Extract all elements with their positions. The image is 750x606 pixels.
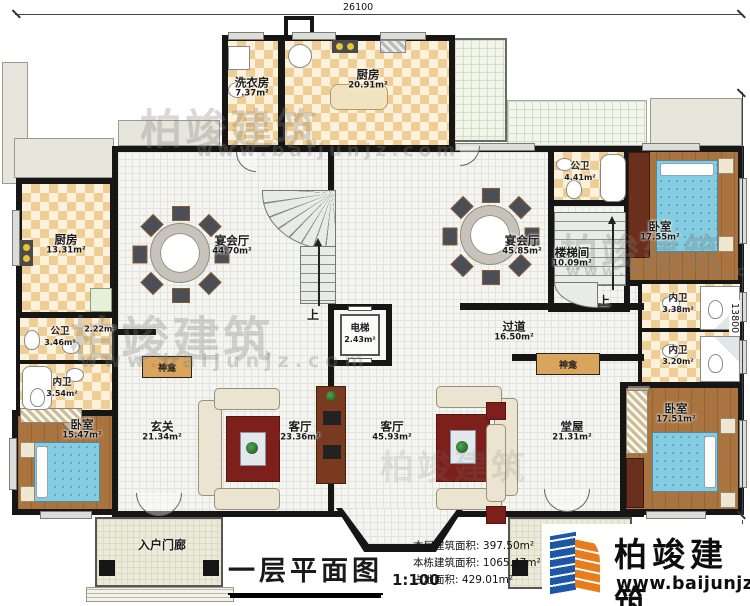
toilet-icon [566, 180, 582, 199]
room-label-public-bath-right: 公卫 4.41m² [564, 162, 596, 182]
page-title: 一层平面图 [228, 549, 383, 595]
range-hood-icon [380, 40, 406, 53]
toilet-icon [708, 300, 723, 319]
room-label-private-bath-right-upper: 内卫 3.38m² [662, 294, 694, 314]
elevator-door [348, 358, 372, 363]
floor-plan: 神龛 神龛 [0, 0, 750, 606]
company-logo: 柏竣建筑 www.baijunjz.com [542, 524, 750, 606]
shrine: 神龛 [142, 356, 192, 378]
area-label-closet-left: 2.22m² [84, 324, 116, 333]
room-label-stair-hall: 楼梯间 10.09m² [552, 247, 591, 270]
stairs-up-label: 上 [598, 295, 610, 309]
room-label-private-bath-left: 内卫 3.54m² [46, 378, 78, 398]
room-label-public-bath-left: 公卫 3.46m² [44, 327, 76, 347]
hall-sofa [486, 424, 506, 502]
logo-building-icon [575, 537, 600, 592]
porch-left-steps [86, 587, 234, 602]
company-name: 柏竣建筑 [614, 528, 750, 606]
room-label-banquet-right: 宴会厅 45.85m² [502, 235, 541, 258]
company-website: www.baijunjz.com [616, 574, 750, 594]
room-label-kitchen-left: 厨房 13.31m² [46, 234, 85, 257]
room-label-banquet-left: 宴会厅 44.70m² [212, 235, 251, 258]
tv-cabinet [316, 386, 346, 484]
stove-icon [332, 40, 358, 53]
room-label-bedroom-bottom-right: 卧室 17.51m² [656, 403, 695, 426]
room-label-bedroom-top-right: 卧室 17.55m² [640, 221, 679, 244]
room-label-porch-left: 入户门廊 [138, 539, 186, 553]
toilet-icon [24, 330, 40, 350]
eave-strip [118, 120, 220, 146]
dimension-line-top [15, 14, 742, 15]
room-label-private-bath-right-lower: 内卫 3.20m² [662, 346, 694, 366]
room-label-main-hall: 堂屋 21.31m² [552, 421, 591, 444]
terrace [453, 38, 507, 142]
dimension-right: 13800 [729, 300, 740, 336]
stairs-up-label: 上 [307, 309, 319, 323]
room-label-entry-hall: 玄关 21.34m² [142, 421, 181, 444]
desk [626, 458, 644, 508]
shrine: 神龛 [536, 353, 600, 375]
room-label-living-right: 客厅 45.93m² [372, 421, 411, 444]
eave-strip [14, 138, 114, 178]
dimension-top: 26100 [340, 2, 376, 13]
shrine-label: 神龛 [158, 361, 176, 374]
corner-cabinet [486, 402, 506, 420]
dimension-line-right [742, 92, 743, 516]
room-label-laundry: 洗衣房 7.37m² [235, 77, 270, 100]
elevator-door [348, 306, 372, 311]
toilet-icon [708, 354, 723, 373]
washer-icon [228, 46, 250, 70]
room-label-kitchen-top: 厨房 20.91m² [348, 69, 387, 92]
title-block: 一层平面图 1:100 [228, 549, 440, 595]
wardrobe [626, 390, 648, 454]
corner-cabinet [486, 506, 506, 524]
bathtub-icon [600, 154, 626, 202]
room-label-living-left: 客厅 23.36m² [280, 421, 319, 444]
fridge-icon [90, 288, 112, 312]
shrine-label: 神龛 [559, 358, 577, 371]
stove-icon [20, 240, 33, 266]
sofa-set [198, 388, 290, 506]
eave-strip [650, 98, 742, 146]
room-label-corridor: 过道 16.50m² [494, 321, 533, 344]
terrace [507, 100, 647, 146]
logo-building-icon [550, 532, 576, 595]
room-label-bedroom-left: 卧室 15.47m² [62, 419, 101, 442]
room-label-elevator: 电梯 2.43m² [344, 324, 376, 344]
kitchen-sink-icon [288, 44, 312, 68]
toilet-icon [30, 388, 45, 407]
